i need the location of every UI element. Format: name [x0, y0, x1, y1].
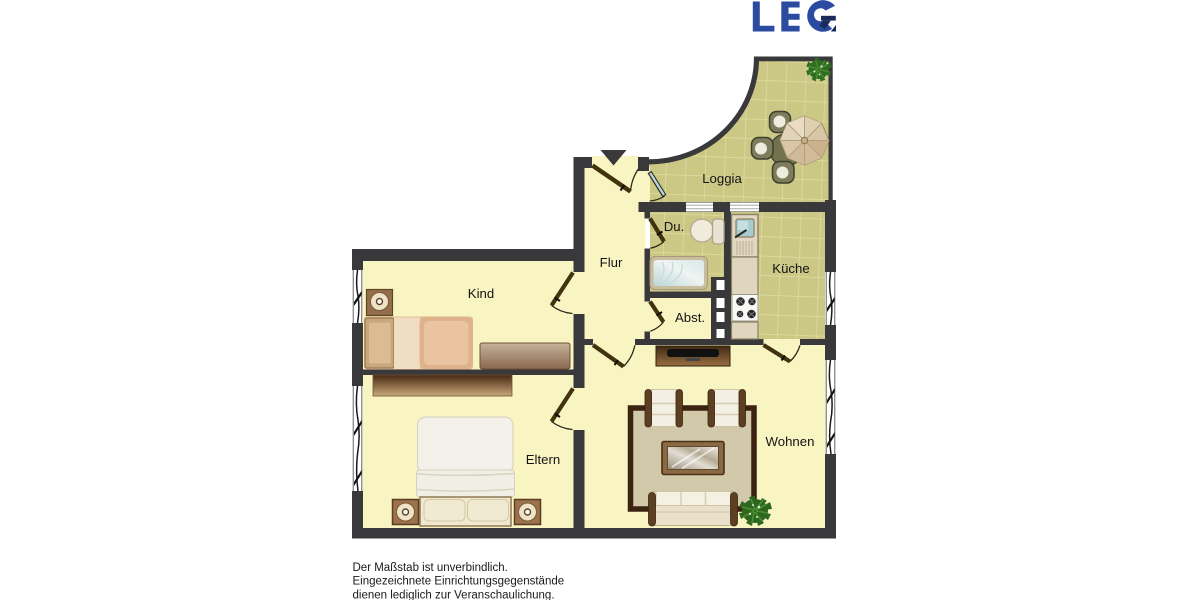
svg-text:dienen lediglich zur Veranscha: dienen lediglich zur Veranschaulichung.: [353, 589, 555, 600]
svg-text:Loggia: Loggia: [702, 171, 742, 186]
svg-text:Kind: Kind: [468, 286, 494, 301]
svg-text:Eingezeichnete Einrichtungsgeg: Eingezeichnete Einrichtungsgegenstände: [353, 576, 565, 588]
svg-text:Du.: Du.: [664, 219, 685, 234]
svg-text:Eltern: Eltern: [526, 452, 560, 467]
svg-text:Küche: Küche: [772, 261, 809, 276]
svg-text:Wohnen: Wohnen: [766, 434, 815, 449]
svg-text:Abst.: Abst.: [675, 310, 705, 325]
svg-text:Der Maßstab ist unverbindlich.: Der Maßstab ist unverbindlich.: [353, 562, 508, 574]
svg-text:Flur: Flur: [600, 255, 623, 270]
